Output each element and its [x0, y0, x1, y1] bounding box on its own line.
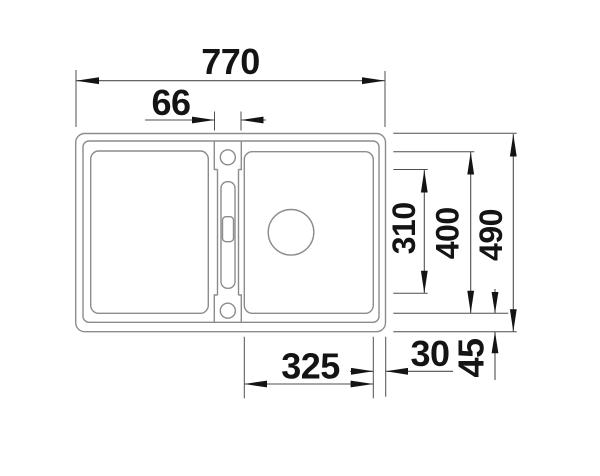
dim-45-arrow-bottom: [492, 332, 499, 354]
dimension-325: 325: [244, 346, 373, 388]
tap-hole-top: [220, 150, 235, 165]
dimension-770: 770: [76, 41, 385, 127]
overflow-slot: [223, 217, 234, 242]
drain-hole: [268, 210, 314, 256]
main-bowl: [244, 152, 373, 314]
dimension-45: 45: [451, 289, 499, 380]
dim-310-arrow-bottom: [421, 271, 428, 294]
dim-770-arrow-left: [76, 77, 99, 84]
dim-30-arrow-left: [351, 368, 373, 375]
sink-technical-drawing: 770 66 310 400 490 45: [0, 0, 600, 476]
dim-770-arrow-right: [362, 77, 385, 84]
dimension-30: 30: [350, 333, 453, 375]
dim-325-label: 325: [281, 346, 340, 387]
dim-45-label: 45: [451, 338, 492, 378]
dim-310-arrow-top: [421, 170, 428, 193]
dim-310-label: 310: [386, 202, 422, 254]
dim-66-ticks: [215, 112, 242, 131]
dim-66-arrow-left: [192, 117, 215, 124]
dim-490-label: 490: [473, 209, 509, 261]
dim-400-arrow-top: [467, 152, 474, 175]
sink-body: [76, 134, 386, 332]
dim-30-label: 30: [410, 333, 449, 374]
dim-400-label: 400: [430, 207, 466, 259]
sink-outer-edge: [76, 134, 386, 332]
drainboard-bowl: [91, 151, 209, 313]
dimension-310: 310: [386, 170, 428, 293]
tap-hole-bottom: [220, 303, 235, 318]
dim-45-arrow-top: [492, 292, 499, 313]
dim-30-arrow-right: [386, 368, 408, 375]
dim-400-arrow-bottom: [467, 291, 474, 314]
dim-66-label: 66: [151, 82, 190, 123]
dim-770-label: 770: [201, 41, 260, 82]
drawing-canvas: 770 66 310 400 490 45: [0, 0, 600, 476]
dimension-400: 400: [430, 152, 475, 313]
dim-490-arrow-bottom: [510, 309, 517, 332]
dim-325-arrow-left: [244, 381, 267, 388]
dim-325-arrow-right: [351, 381, 374, 388]
dimension-66: 66: [145, 82, 266, 131]
dim-66-arrow-right: [241, 117, 264, 124]
dim-490-arrow-top: [510, 134, 517, 157]
sink-rim-edge: [83, 141, 379, 322]
